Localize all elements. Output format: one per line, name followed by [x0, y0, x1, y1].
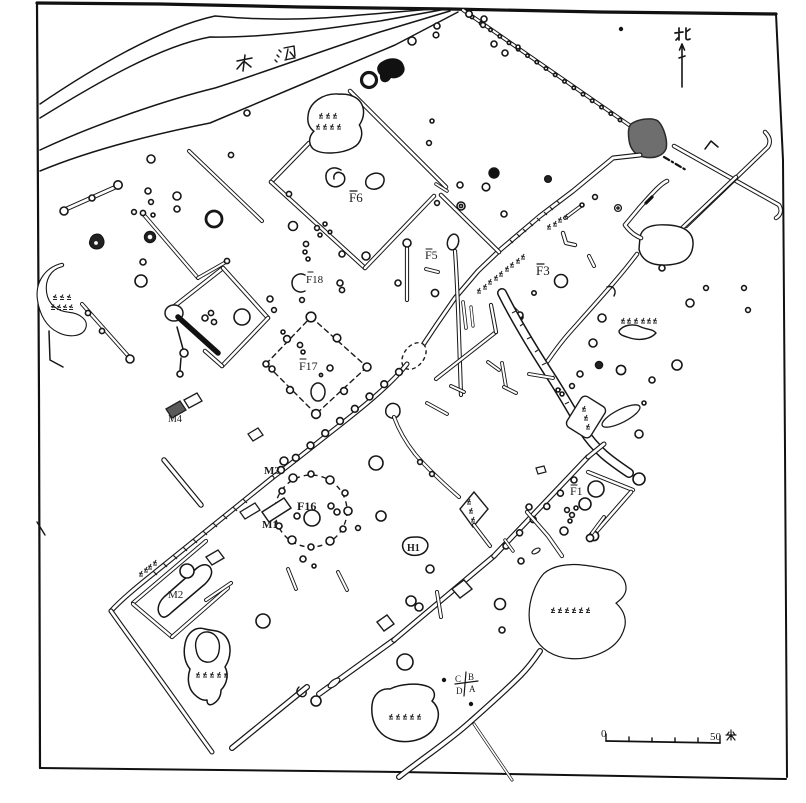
svg-text:F16: F16: [297, 499, 316, 513]
svg-text:F5: F5: [425, 248, 438, 262]
svg-text:F17: F17: [299, 359, 318, 373]
svg-text:M2: M2: [168, 589, 183, 601]
svg-text:M4: M4: [168, 414, 182, 425]
svg-text:F1: F1: [570, 484, 583, 498]
svg-text:M3: M3: [264, 465, 280, 477]
svg-text:F18: F18: [306, 274, 324, 286]
svg-text:F6: F6: [349, 190, 363, 205]
svg-text:D: D: [456, 686, 463, 696]
svg-text:C: C: [455, 674, 461, 684]
svg-text:B: B: [468, 672, 474, 682]
svg-text:F3: F3: [536, 263, 550, 278]
svg-text:H1: H1: [407, 543, 420, 554]
svg-text:M1: M1: [262, 519, 278, 531]
svg-text:A: A: [469, 684, 476, 694]
svg-text:0: 0: [601, 728, 607, 740]
svg-text:50: 50: [710, 731, 722, 743]
